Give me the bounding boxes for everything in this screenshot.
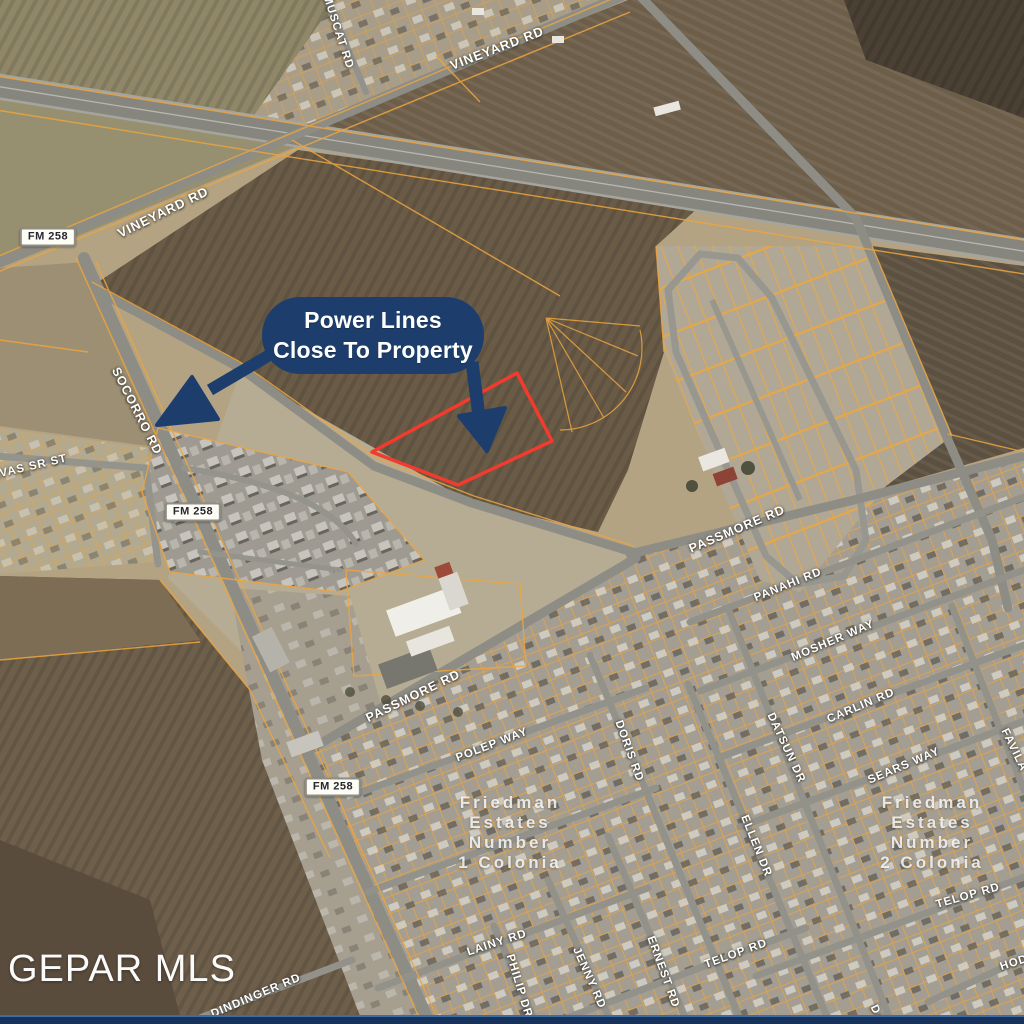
route-badge-fm258-south: FM 258: [305, 778, 361, 797]
left-edge-subdivision: [0, 428, 154, 574]
route-badge-fm258-middle: FM 258: [165, 503, 221, 522]
aerial-map-image: Power Lines Close To Property FM 258 FM …: [0, 0, 1024, 1024]
route-badge-fm258-north: FM 258: [20, 228, 76, 247]
bottom-blue-bar: [0, 1015, 1024, 1024]
subdivision-label-friedman-1: Friedman Estates Number 1 Colonia: [458, 793, 562, 873]
callout-line-2: Close To Property: [273, 336, 473, 366]
gepar-mls-watermark: GEPAR MLS: [8, 948, 236, 991]
power-lines-callout: Power Lines Close To Property: [262, 297, 484, 374]
callout-line-1: Power Lines: [304, 306, 442, 336]
subdivision-label-friedman-2: Friedman Estates Number 2 Colonia: [880, 793, 984, 873]
